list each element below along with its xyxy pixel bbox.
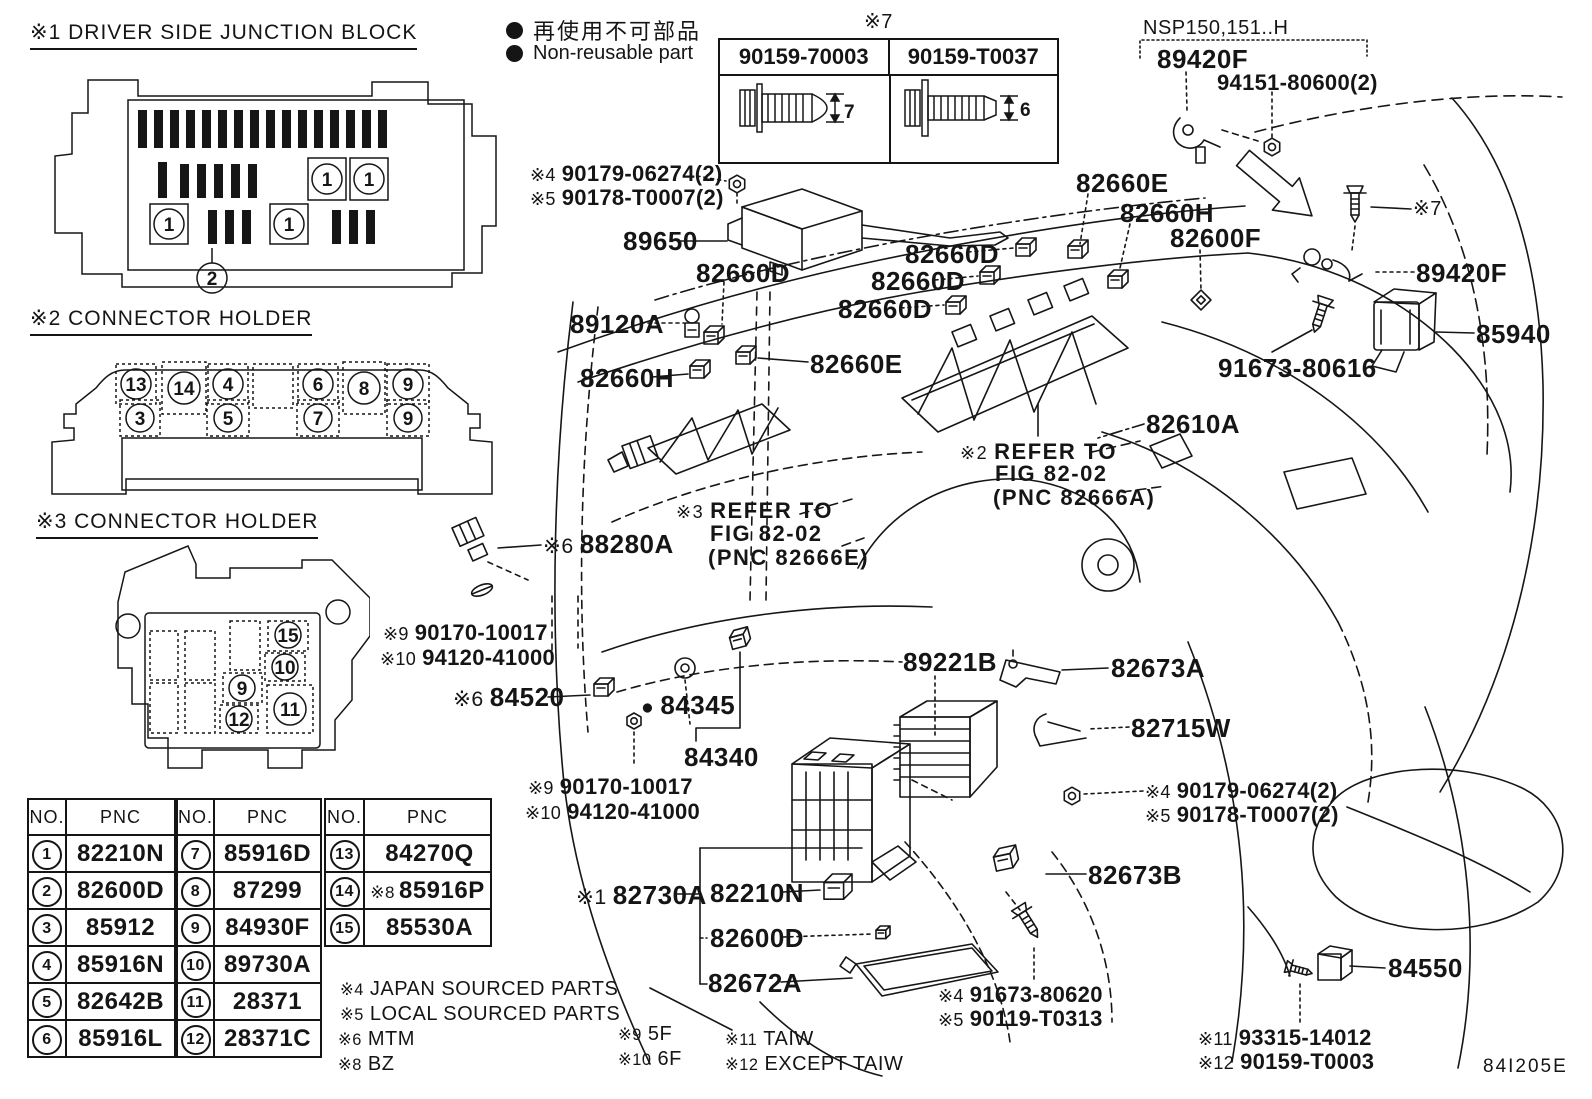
no-header: NO. [177,799,214,835]
refer-note-2-line2: FIG 82-02 [995,462,1108,485]
part-label-90179-06274: ※490179-06274(2) [530,162,723,185]
part-label-89221B: 89221B [903,649,997,676]
part-label-84345: ●84345 [641,692,735,719]
part-label-82673A: 82673A [1111,655,1205,682]
part-label-93315-14012: ※1193315-14012 [1198,1026,1372,1049]
callout-badge: 7 [313,409,324,430]
callout-badge: 1 [364,170,375,191]
table-row: 182210N [28,835,175,872]
note-9-5F: ※95F [618,1024,672,1045]
refer-note-3-line2: FIG 82-02 [710,522,823,545]
part-label-82660E: 82660E [810,351,903,378]
table-row: 582642B [28,983,175,1020]
part-label-82660E-top: 82660E [1076,170,1169,197]
part-label-90178-T0007: ※590178-T0007(2) [530,186,724,209]
refer-note-3-line3: (PNC 82666E) [708,546,869,569]
screw-part-1: 90159-70003 [720,40,890,74]
callout-badge: 9 [237,679,248,700]
callout-badge: 9 [403,375,414,396]
screw-dim-2: 6 [1020,100,1031,121]
part-label-82210N: 82210N [710,880,804,907]
pnc-header: PNC [66,799,175,835]
callout-badge: 1 [284,215,295,236]
part-label-90178-T0007-2: ※590178-T0007(2) [1145,803,1339,826]
table-row: 1128371 [177,983,321,1020]
part-label-82610A: 82610A [1146,411,1240,438]
no-header: NO. [325,799,364,835]
part-label-90179-06274-2: ※490179-06274(2) [1145,779,1338,802]
table-row: 385912 [28,909,175,946]
callout-badge: 5 [223,409,234,430]
part-label-89650: 89650 [623,228,698,255]
part-label-82660D-r1: 82660D [905,241,999,268]
part-label-90170-10017: ※990170-10017 [383,621,548,644]
callout-badge: 13 [125,375,146,396]
part-label-89420F: 89420F [1416,260,1507,287]
part-label-85940: 85940 [1476,321,1551,348]
callout-badge: 15 [277,626,299,647]
note-10-6F: ※106F [618,1049,682,1070]
table-row: 685916L [28,1020,175,1057]
part-label-82660D-r2: 82660D [871,268,965,295]
junction-block-drawing: 1 1 1 1 2 [40,58,510,298]
callout-badge: 10 [274,658,295,679]
note-8-bz: ※8BZ [338,1054,394,1075]
callout-badge: 3 [135,409,146,430]
connector-holder2-drawing: 13 14 4 6 8 9 3 5 7 9 [40,352,510,507]
part-label-84340: 84340 [684,744,759,771]
table-row: 1585530A [325,909,491,946]
ref-label-7: ※7 [1413,199,1442,220]
screwbox-ref: ※7 [864,12,893,33]
refer-note-2-line1: ※2REFER TO [960,440,1117,463]
section2-title: ※2 CONNECTOR HOLDER [30,306,312,336]
parts-table-group-2: NO.PNC 785916D 887299 984930F 1089730A 1… [176,798,322,1058]
section3-title: ※3 CONNECTOR HOLDER [36,509,318,539]
note-11-taiw: ※11TAIW [725,1029,814,1050]
part-label-82660D: 82660D [696,260,790,287]
callout-badge: 8 [359,379,370,400]
table-row: 887299 [177,872,321,909]
connector-holder3-drawing: 15 10 9 11 12 [70,538,370,798]
part-label-82715W: 82715W [1131,715,1231,742]
callout-badge: 2 [207,269,218,290]
part-label-94151-80600: 94151-80600(2) [1217,71,1378,94]
parts-diagram-page: 1 1 1 1 2 13 14 4 6 8 9 3 5 [0,0,1592,1099]
callout-badge: 12 [228,710,249,731]
nonreusable-dot-icon [506,45,523,62]
part-label-91673-80616: 91673-80616 [1218,355,1377,382]
screw-part-2: 90159-T0037 [890,40,1058,74]
parts-table-group-3: NO.PNC 1384270Q 14※885916P 1585530A [324,798,492,947]
note-5-local-sourced: ※5LOCAL SOURCED PARTS [340,1004,620,1025]
pnc-header: PNC [214,799,321,835]
section1-title: ※1 DRIVER SIDE JUNCTION BLOCK [30,20,417,50]
callout-badge: 6 [313,375,324,396]
legend-nonreusable-en: Non-reusable part [506,42,693,65]
callout-badge: 4 [223,375,234,396]
table-row: 282600D [28,872,175,909]
refer-note-3-line1: ※3REFER TO [676,499,833,522]
pnc-header: PNC [364,799,491,835]
part-label-82660H: 82660H [580,365,674,392]
callout-badge: 11 [280,700,301,721]
part-label-91673-80620: ※491673-80620 [938,983,1103,1006]
screw-drawings: 7 6 [720,76,1053,160]
table-row: 1089730A [177,946,321,983]
part-label-82730A: ※182730A [576,882,707,909]
part-label-84550: 84550 [1388,955,1463,982]
note-4-japan-sourced: ※4JAPAN SOURCED PARTS [340,979,618,1000]
table-row: 14※885916P [325,872,491,909]
drawing-code: 84I205E [1483,1056,1568,1078]
nonreusable-dot-icon [506,22,523,39]
refer-note-2-line3: (PNC 82666A) [993,486,1155,509]
callout-badge: 14 [173,379,195,400]
part-label-94120-41000-2: ※1094120-41000 [525,800,700,823]
part-label-90170-10017-2: ※990170-10017 [528,775,693,798]
callout-badge: 1 [164,215,175,236]
part-label-90159-T0003: ※1290159-T0003 [1198,1050,1374,1073]
part-label-82600D: 82600D [710,925,804,952]
callout-badge: 1 [322,170,333,191]
part-label-82672A: 82672A [708,970,802,997]
part-label-82673B: 82673B [1088,862,1182,889]
note-12-except-taiw: ※12EXCEPT TAIW [725,1054,903,1075]
table-row: 984930F [177,909,321,946]
no-header: NO. [28,799,66,835]
part-label-82600F: 82600F [1170,225,1261,252]
part-label-84520: ※684520 [453,684,565,711]
table-row: 785916D [177,835,321,872]
table-row: 1228371C [177,1020,321,1057]
part-label-82660D-r3: 82660D [838,296,932,323]
part-label-94120-41000: ※1094120-41000 [380,646,555,669]
callout-badge: 9 [403,409,414,430]
part-label-88280A: ※688280A [543,531,674,558]
part-label-90119-T0313: ※590119-T0313 [938,1007,1103,1030]
table-row: 485916N [28,946,175,983]
part-label-89120A: 89120A [570,311,664,338]
screw-spec-box: 90159-70003 90159-T0037 7 6 [718,38,1059,164]
note-6-mtm: ※6MTM [338,1029,415,1050]
parts-table-group-1: NO.PNC 182210N 282600D 385912 485916N 58… [27,798,176,1058]
table-row: 1384270Q [325,835,491,872]
screw-dim-1: 7 [844,102,855,123]
variant-model: NSP150,151..H [1143,18,1288,39]
